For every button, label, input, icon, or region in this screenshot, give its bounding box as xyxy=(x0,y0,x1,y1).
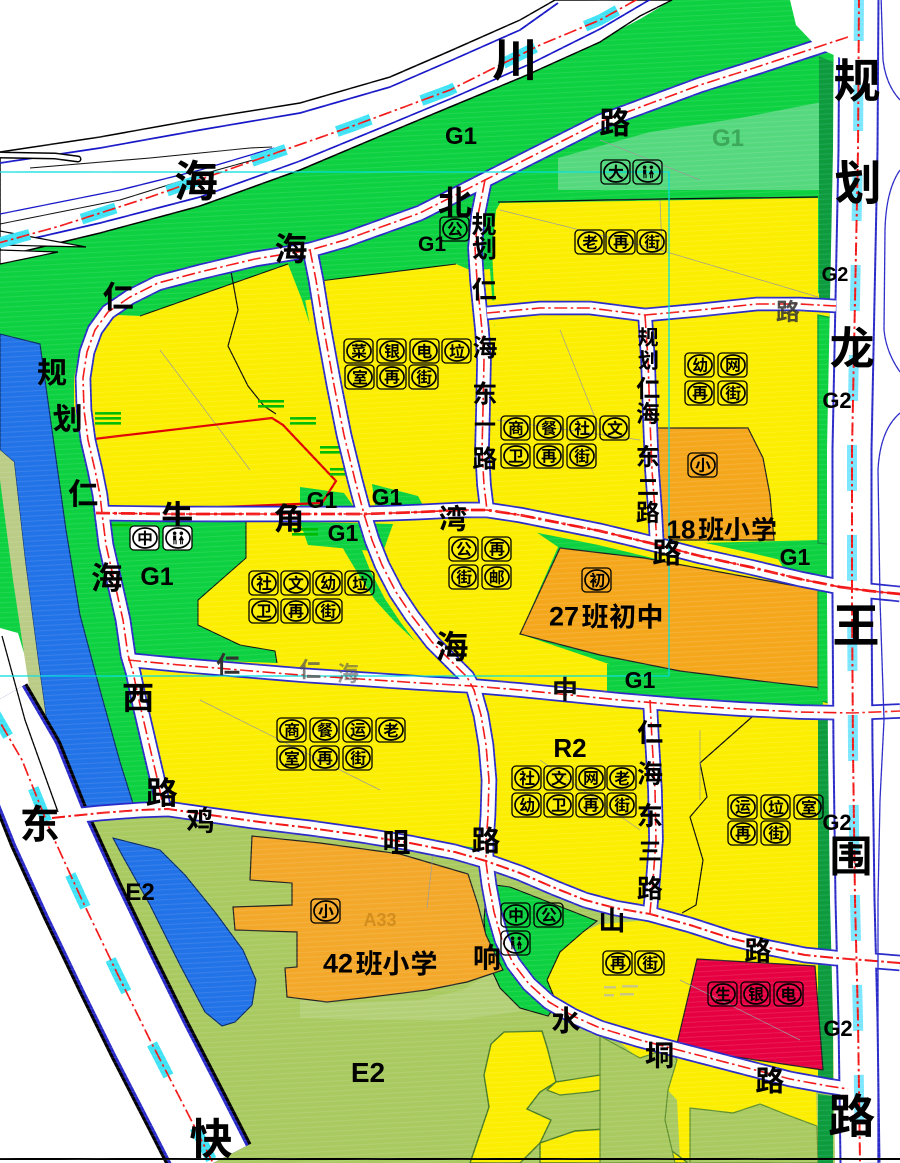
svg-text:G1: G1 xyxy=(418,233,446,256)
svg-text:R2: R2 xyxy=(553,733,586,763)
svg-text:E2: E2 xyxy=(351,1057,385,1088)
svg-text:G1: G1 xyxy=(712,125,744,152)
svg-text:27: 27 xyxy=(549,602,579,632)
svg-text:G1: G1 xyxy=(372,484,403,510)
svg-text:G2: G2 xyxy=(822,264,849,286)
svg-text:G1: G1 xyxy=(780,544,811,570)
svg-text:A33: A33 xyxy=(363,910,396,930)
svg-text:G2: G2 xyxy=(823,1016,852,1041)
svg-text:42: 42 xyxy=(323,949,353,979)
svg-text:G2: G2 xyxy=(822,388,851,413)
svg-text:G1: G1 xyxy=(140,563,173,591)
svg-text:G1: G1 xyxy=(445,123,477,150)
svg-text:G1: G1 xyxy=(625,667,656,693)
svg-text:G2: G2 xyxy=(822,810,851,835)
svg-text:18: 18 xyxy=(667,514,696,544)
svg-text:E2: E2 xyxy=(125,879,154,906)
svg-text:G1: G1 xyxy=(328,520,359,546)
svg-text:G1: G1 xyxy=(307,487,338,513)
